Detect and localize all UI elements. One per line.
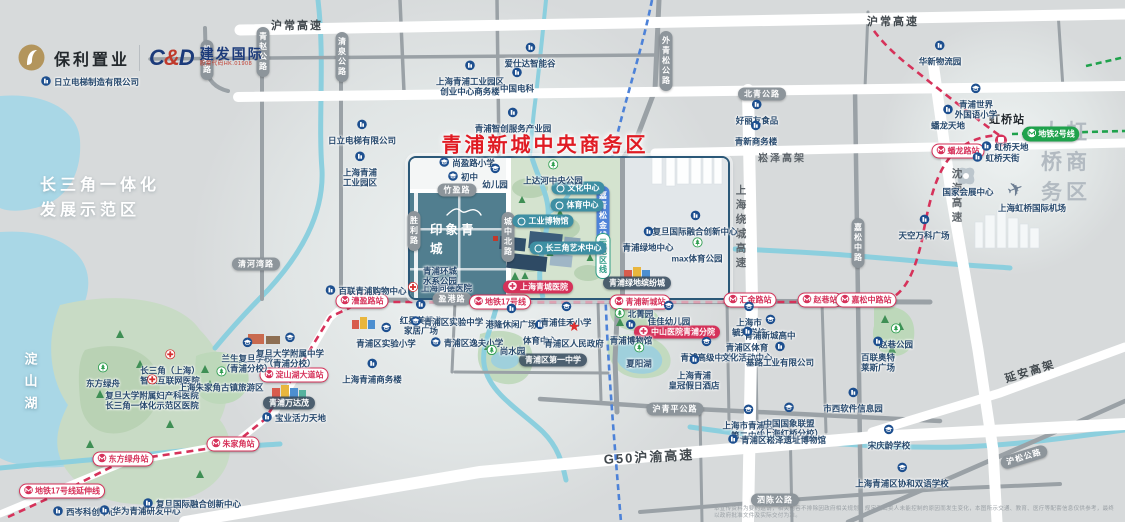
building-icon <box>465 57 475 75</box>
poi-marker: 青浦绿地中心 <box>622 223 673 252</box>
transit-line-badge: 地铁2号线 <box>1022 127 1079 142</box>
school-icon <box>381 319 391 337</box>
school-icon <box>242 334 252 352</box>
building-icon <box>775 338 785 356</box>
poi-marker: 复旦国际融合创新中心 <box>143 495 241 513</box>
poi-label: 尚水园 <box>500 346 526 356</box>
poi-marker: 日立电梯制造有限公司 <box>41 73 139 91</box>
school-icon <box>701 333 711 351</box>
poi-marker: 上海青浦 皇冠假日酒店 <box>668 351 719 390</box>
cnd-logo: C&D 建发国际 股票代码HK.01908 <box>149 45 264 71</box>
poi-label: 上达河中央公园 <box>523 175 583 185</box>
building-icon <box>873 333 883 351</box>
building-icon <box>626 316 636 334</box>
gov-star-icon <box>568 319 580 337</box>
metro-icon <box>937 146 946 157</box>
poi-marker: 青浦环城 水系公园 <box>423 266 457 286</box>
road-pill: 清泉公路 <box>336 32 349 82</box>
highway-label: G50沪渝高速 <box>603 444 694 468</box>
poi-marker: 上海青浦商务楼 <box>342 355 402 384</box>
poi-marker: 幼儿园 <box>482 160 508 189</box>
poi-label: 复旦大学附属中学 （青浦分校） <box>256 348 324 368</box>
poi-marker: 市西软件信息园 <box>823 384 883 413</box>
civic-facility-badge: 工业博物馆 <box>513 215 574 228</box>
poi-marker: max体育公园 <box>671 234 722 263</box>
demo-zone-title: 长三角一体化 发展示范区 <box>40 174 160 224</box>
poi-label: 佳佳幼儿园 <box>648 316 691 326</box>
road-pill: 胜利路 <box>408 211 421 251</box>
poi-marker: 尚水园 <box>487 342 526 360</box>
poi-label: 青浦区实验小学 <box>356 338 416 348</box>
poi-label: 虹桥天街 <box>985 153 1019 163</box>
tree-icon <box>548 156 558 174</box>
poi-label: 初中 <box>461 172 478 182</box>
building-icon <box>53 503 63 521</box>
poi-label: 蟠龙天地 <box>931 120 965 130</box>
poi-label: 复旦大学附属妇产科医院 长三角一体化示范区医院 <box>105 390 199 410</box>
poi-marker: 青浦区崧泽遗址博物馆 <box>728 431 826 449</box>
poi-label: 基路工业有限公司 <box>746 357 814 367</box>
poi-marker: 百联青浦购物中心 <box>325 282 406 300</box>
building-icon <box>643 223 653 241</box>
poi-label: 上海虹桥国际机场 <box>998 203 1066 213</box>
school-icon <box>784 399 794 417</box>
cnd-brand-name: 建发国际 <box>200 47 264 62</box>
poi-label: 百联青浦购物中心 <box>338 286 406 296</box>
poi-label: max体育公园 <box>671 253 722 263</box>
poi-marker: 上海青浦区协和双语学校 <box>855 459 949 488</box>
landmark-badge: 青浦绿地缤纷城 <box>603 277 671 290</box>
road-pill: 外青松公路 <box>660 31 673 91</box>
poi-label: 国家会展中心 <box>942 187 993 197</box>
poi-marker: 中国电科 <box>500 64 534 93</box>
poi-marker: 华新物流园 <box>919 37 962 66</box>
building-icon <box>508 104 518 122</box>
tree-icon <box>692 234 702 252</box>
building-icon <box>262 409 272 427</box>
school-icon <box>971 80 981 98</box>
building-icon <box>972 149 982 167</box>
school-icon <box>664 297 674 315</box>
building-icon <box>935 37 945 55</box>
metro-icon <box>803 295 812 306</box>
poi-marker: 青浦区实验中学 <box>411 313 484 331</box>
building-icon <box>848 384 858 402</box>
poi-label: 青浦智创服务产业园 <box>475 123 552 133</box>
poi-marker: 上海虹桥国际机场 <box>998 203 1066 213</box>
building-icon <box>689 351 699 369</box>
landmark-badge: 青浦区第一中学 <box>519 354 587 367</box>
civic-facility-badge: 体育中心 <box>551 199 604 212</box>
transit-line-badge: 示范区线 <box>596 233 611 279</box>
metro-station-badge: 地铁17号线延伸线 <box>19 484 105 499</box>
civic-facility-badge: 长三角艺术中心 <box>530 242 607 255</box>
highway-label: 沪常高速 <box>867 13 919 29</box>
building-icon <box>751 117 761 135</box>
metro-station-badge: 东方绿舟站 <box>93 452 154 467</box>
metro-icon <box>24 486 33 497</box>
poi-label: 青浦环城 水系公园 <box>423 266 457 286</box>
poi-label: 青浦区崧泽遗址博物馆 <box>741 435 826 445</box>
road-pill: 泗陈公路 <box>751 494 799 507</box>
hospital-badge: 上海青城医院 <box>503 281 573 294</box>
poi-marker: 佳佳幼儿园 <box>648 297 691 326</box>
poi-marker: 日立电梯有限公司 <box>328 116 396 145</box>
cnd-stock-code: 股票代码HK.01908 <box>200 62 264 68</box>
poi-marker: 基路工业有限公司 <box>746 338 814 367</box>
building-icon <box>41 73 51 91</box>
building-icon <box>752 96 762 114</box>
building-icon <box>416 296 426 314</box>
poi-marker: 上海青浦 工业园区 <box>343 148 377 187</box>
poi-marker: 宋庆龄学校 <box>868 421 911 450</box>
poi-label: 青浦区实验中学 <box>424 317 484 327</box>
poi-label: 夏阳湖 <box>626 358 652 368</box>
poi-label: 上海青浦 皇冠假日酒店 <box>668 370 719 390</box>
poi-label: 日立电梯制造有限公司 <box>54 77 139 87</box>
poi-marker: 百联奥特 莱斯广场 <box>861 333 895 372</box>
highway-label: 延安高架 <box>1003 356 1057 387</box>
tree-icon <box>634 339 644 357</box>
landmark-badge: 青浦万达茂 <box>263 397 315 410</box>
brand-header: 保利置业 C&D 建发国际 股票代码HK.01908 <box>18 44 264 71</box>
road-pill: 沪松公路 <box>999 444 1049 470</box>
poly-logo-icon <box>18 44 45 71</box>
building-icon <box>525 39 535 57</box>
hospital-cross-icon <box>165 346 175 364</box>
metro-icon <box>841 295 850 306</box>
poi-label: 复旦国际融合创新中心 <box>156 499 241 509</box>
poi-marker: 天空万科广场 <box>898 211 949 240</box>
poi-label: 上海青浦商务楼 <box>342 374 402 384</box>
building-icon <box>728 431 738 449</box>
building-icon <box>325 282 335 300</box>
map-labels-layer: 青浦新城中央商务区 大虹桥商务区 长三角一体化 发展示范区 淀山湖 虹桥站 沪常… <box>0 0 1125 522</box>
hospital-cross-icon <box>408 279 418 297</box>
metro-station-badge: 嘉松中路站 <box>836 293 897 308</box>
school-icon <box>897 459 907 477</box>
school-icon <box>884 421 894 439</box>
poi-label: 青浦绿地中心 <box>622 242 673 252</box>
poi-marker: 虹桥天街 <box>972 149 1019 167</box>
building-icon <box>506 300 516 318</box>
building-icon <box>355 148 365 166</box>
poi-label: 上海青浦工业园区 创业中心商务楼 <box>436 76 504 96</box>
cnd-mark: C&D <box>149 45 194 71</box>
metro-icon <box>98 454 107 465</box>
school-icon <box>490 160 500 178</box>
poi-marker: 青浦世界 外国语小学 <box>955 80 998 119</box>
poi-marker: 青浦区人民政府 <box>544 319 604 348</box>
disclaimer-text: 本宣传资料为要约邀请，相关内容不排除因政府相关规划、规定及出卖人未能控制的原因而… <box>714 506 1118 519</box>
poi-label: 中国电科 <box>500 83 534 93</box>
school-icon <box>561 298 571 316</box>
poi-label: 百联奥特 莱斯广场 <box>861 352 895 372</box>
poi-label: 天空万科广场 <box>898 230 949 240</box>
metro-station-badge: 朱家角站 <box>207 437 260 452</box>
poi-marker: 国家会展中心 <box>942 187 993 197</box>
metro-icon <box>1027 129 1036 140</box>
building-icon <box>99 502 109 520</box>
building-icon <box>690 207 700 225</box>
poi-label: 宝业活力天地 <box>275 413 326 423</box>
building-icon <box>919 211 929 229</box>
brand-divider <box>139 45 140 71</box>
poi-label: 日立电梯有限公司 <box>328 135 396 145</box>
highway-label: 沪常高速 <box>271 17 323 33</box>
metro-icon <box>212 439 221 450</box>
building-icon <box>367 355 377 373</box>
poi-label: 上海朱家角古镇旅游区 <box>178 382 263 392</box>
hospital-cross-icon <box>508 282 517 293</box>
hospital-cross-icon <box>147 371 157 389</box>
poi-marker: 上海青浦工业园区 创业中心商务楼 <box>436 57 504 96</box>
poi-marker: 复旦大学附属中学 （青浦分校） <box>256 329 324 368</box>
road-pill: 沪青平公路 <box>647 403 704 416</box>
poi-label: 上海青浦 工业园区 <box>343 167 377 187</box>
school-icon <box>448 168 458 186</box>
school-icon <box>285 329 295 347</box>
highway-label: 崧泽高架 <box>758 150 806 165</box>
poi-label: 青浦世界 外国语小学 <box>955 99 998 119</box>
poi-marker: 青浦智创服务产业园 <box>475 104 552 133</box>
poi-label: 上海青浦区协和双语学校 <box>855 478 949 488</box>
poi-label: 市西软件信息园 <box>823 403 883 413</box>
building-icon <box>512 64 522 82</box>
poi-label: 华新物流园 <box>919 56 962 66</box>
school-icon <box>743 401 753 419</box>
metro-icon <box>474 297 483 308</box>
poi-label: 青浦区人民政府 <box>544 338 604 348</box>
poi-marker: 青新商务楼 <box>735 117 778 146</box>
school-icon <box>411 313 421 331</box>
poi-label: 宋庆龄学校 <box>868 440 911 450</box>
poi-label: 青新商务楼 <box>735 136 778 146</box>
road-pill: 清河湾路 <box>232 258 280 271</box>
poi-marker: 上达河中央公园 <box>523 156 583 185</box>
building-icon <box>943 101 953 119</box>
dianshan-lake-label: 淀山湖 <box>21 352 40 418</box>
poi-marker: 初中 <box>448 168 478 186</box>
building-icon <box>357 116 367 134</box>
poi-marker: 宝业活力天地 <box>262 409 326 427</box>
poi-marker: 夏阳湖 <box>626 339 652 368</box>
poi-label: 幼儿园 <box>482 179 508 189</box>
road-pill: 嘉松中路 <box>852 218 865 268</box>
building-icon <box>143 495 153 513</box>
tree-icon <box>487 342 497 360</box>
poly-brand-name: 保利置业 <box>54 46 130 70</box>
school-icon <box>431 334 441 352</box>
marketing-map: ✈ 保利置业 C&D 建发国际 股票代码HK.01908 <box>0 0 1125 522</box>
